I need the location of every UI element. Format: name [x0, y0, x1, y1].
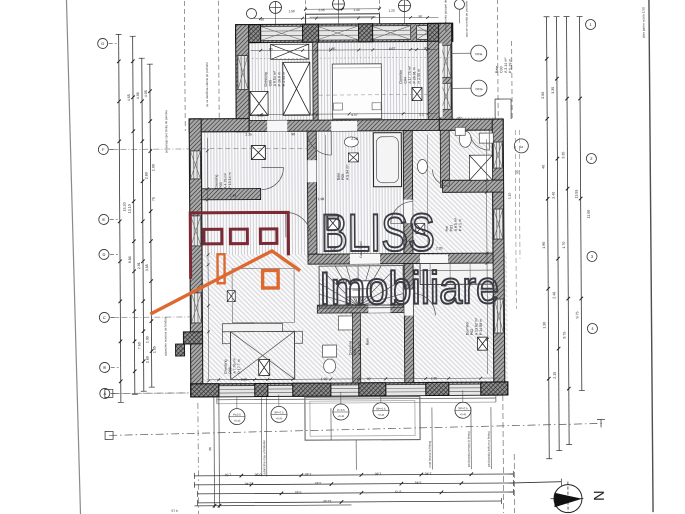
svg-text:1.70: 1.70: [562, 242, 566, 249]
svg-text:A 9.54 m²: A 9.54 m²: [273, 70, 277, 86]
svg-text:P 14.88 m: P 14.88 m: [479, 319, 483, 335]
svg-text:P 13.14 m: P 13.14 m: [228, 172, 232, 188]
svg-text:2.40: 2.40: [305, 472, 312, 476]
svg-text:C: C: [103, 315, 106, 320]
svg-text:3: 3: [591, 254, 594, 259]
svg-text:C04: C04: [403, 77, 407, 84]
svg-text:plan parter scara 1:50: plan parter scara 1:50: [641, 7, 645, 38]
svg-text:se retrage spre limita de parc: se retrage spre limita de parcela: [164, 110, 168, 153]
svg-text:BLISS: BLISS: [321, 203, 435, 263]
svg-text:pardoseala terasa la finisaj: pardoseala terasa la finisaj: [467, 431, 471, 467]
svg-text:1.05: 1.05: [153, 346, 157, 353]
svg-text:P05: P05: [341, 174, 345, 180]
svg-text:1.00: 1.00: [151, 164, 155, 171]
svg-text:2.44: 2.44: [230, 194, 237, 198]
svg-text:Dressing: Dressing: [349, 341, 353, 355]
svg-text:Baie: Baie: [365, 338, 369, 345]
svg-text:4.57: 4.57: [351, 113, 358, 117]
svg-text:3.35: 3.35: [561, 152, 565, 159]
svg-text:2.91: 2.91: [137, 262, 141, 269]
svg-text:45°: 45°: [457, 116, 463, 120]
svg-text:4.06: 4.06: [136, 92, 140, 99]
svg-text:9.75: 9.75: [575, 312, 579, 319]
svg-text:+0.45: +0.45: [378, 413, 385, 417]
svg-text:P03: P03: [219, 182, 223, 188]
svg-text:A 5.94 m²: A 5.94 m²: [345, 164, 349, 180]
svg-text:5.45: 5.45: [415, 481, 422, 485]
svg-text:13.93: 13.93: [575, 190, 579, 199]
svg-text:B: B: [103, 365, 106, 370]
svg-text:adancime max a fundatiei: adancime max a fundatiei: [262, 440, 266, 475]
svg-text:4.65: 4.65: [127, 94, 131, 101]
svg-text:cota terasa la finisaj: cota terasa la finisaj: [428, 441, 432, 468]
svg-text:3.05: 3.05: [257, 113, 264, 117]
svg-text:5.45: 5.45: [295, 490, 302, 494]
svg-text:90: 90: [269, 47, 273, 51]
svg-text:2: 2: [590, 156, 593, 161]
svg-text:P+0.5: P+0.5: [337, 408, 345, 412]
svg-text:3.85: 3.85: [145, 264, 149, 271]
svg-text:7.60: 7.60: [138, 342, 142, 349]
svg-text:P02: P02: [470, 329, 474, 335]
svg-text:Dormitor: Dormitor: [465, 321, 469, 336]
svg-text:9.86: 9.86: [128, 256, 132, 263]
svg-text:H 2.55 m: H 2.55 m: [417, 69, 421, 84]
svg-text:E: E: [102, 217, 105, 222]
svg-text:2.40: 2.40: [245, 482, 252, 486]
svg-text:P 4.1 m: P 4.1 m: [458, 219, 462, 231]
svg-text:90: 90: [291, 132, 295, 136]
svg-text:2.28: 2.28: [351, 137, 358, 141]
svg-text:9.75: 9.75: [562, 332, 566, 339]
svg-text:D: D: [103, 252, 106, 257]
svg-text:Dormitor: Dormitor: [399, 69, 403, 84]
svg-text:2.40: 2.40: [425, 471, 432, 475]
svg-text:1.50: 1.50: [288, 9, 294, 13]
svg-text:+0.45: +0.45: [338, 414, 345, 418]
svg-text:13.10: 13.10: [128, 204, 132, 213]
svg-text:4.05: 4.05: [144, 90, 148, 97]
svg-text:4.67: 4.67: [389, 47, 396, 51]
svg-text:1.10: 1.10: [508, 193, 512, 199]
svg-text:A 4.75 m²: A 4.75 m²: [223, 173, 227, 189]
svg-text:A 3.3 m²: A 3.3 m²: [358, 341, 362, 355]
svg-text:P±0.0: P±0.0: [233, 413, 241, 417]
svg-text:C05: C05: [268, 80, 272, 87]
svg-text:1.50: 1.50: [225, 473, 232, 477]
svg-text:1.85: 1.85: [329, 47, 336, 51]
svg-text:usa se va muta pe peretele opu: usa se va muta pe peretele opus: [464, 0, 468, 37]
svg-text:90: 90: [367, 377, 371, 381]
svg-text:2.80: 2.80: [144, 172, 148, 179]
svg-text:90: 90: [515, 170, 519, 174]
svg-text:P 16.0 m: P 16.0 m: [277, 72, 281, 86]
svg-text:15.20: 15.20: [123, 202, 127, 211]
svg-text:2.15: 2.15: [553, 372, 557, 379]
svg-text:C04a: C04a: [475, 52, 483, 56]
svg-text:9.75: 9.75: [395, 490, 402, 494]
svg-text:A 13.82 m²: A 13.82 m²: [474, 317, 478, 335]
svg-text:90: 90: [424, 46, 428, 50]
svg-text:2.40: 2.40: [552, 192, 556, 199]
svg-text:1.98: 1.98: [318, 197, 325, 201]
svg-text:G: G: [101, 41, 104, 46]
svg-text:90: 90: [419, 15, 423, 19]
svg-text:1a: 1a: [520, 145, 524, 149]
svg-text:Dressing: Dressing: [214, 175, 218, 189]
svg-text:75: 75: [152, 197, 156, 201]
svg-text:1.90: 1.90: [542, 242, 546, 249]
svg-text:2.35: 2.35: [436, 246, 443, 250]
svg-text:A 9.5 m²: A 9.5 m²: [454, 217, 458, 231]
svg-text:SP+0.5: SP+0.5: [274, 410, 284, 414]
svg-text:se va desfiinta zidaria pe por: se va desfiinta zidaria pe portiune: [205, 62, 209, 107]
svg-text:2.85: 2.85: [431, 376, 438, 380]
svg-text:3.35: 3.35: [551, 87, 555, 94]
svg-text:Hol: Hol: [445, 226, 449, 232]
svg-text:1.30: 1.30: [542, 322, 546, 329]
svg-text:3.45: 3.45: [315, 481, 322, 485]
svg-text:F: F: [102, 147, 105, 152]
svg-text:SP+0.5: SP+0.5: [458, 406, 468, 410]
svg-text:adancime maxima de fundare: adancime maxima de fundare: [163, 316, 167, 356]
svg-text:11.00: 11.00: [587, 210, 591, 219]
svg-text:1.90: 1.90: [145, 336, 149, 343]
svg-text:P06: P06: [353, 349, 357, 355]
svg-text:A 7.76 m²: A 7.76 m²: [233, 357, 237, 373]
svg-text:1.40: 1.40: [353, 8, 359, 12]
svg-text:pardoseala balcon a finisaj: pardoseala balcon a finisaj: [487, 431, 491, 467]
svg-text:4: 4: [591, 326, 594, 331]
svg-text:40: 40: [541, 165, 545, 169]
svg-text:SP+0.5: SP+0.5: [376, 407, 386, 411]
svg-text:P08: P08: [228, 367, 232, 373]
svg-text:C03: C03: [499, 66, 503, 73]
svg-text:Imobiliare: Imobiliare: [319, 261, 499, 314]
svg-text:A 17.75 m²: A 17.75 m²: [408, 65, 412, 83]
svg-text:1.80: 1.80: [375, 472, 382, 476]
svg-text:Baie: Baie: [495, 66, 499, 73]
svg-text:se va monta parapet de protect: se va monta parapet de protectie: [443, 0, 447, 31]
svg-text:2.80: 2.80: [146, 356, 150, 363]
svg-text:2.60: 2.60: [541, 92, 545, 99]
svg-text:2.1: 2.1: [419, 112, 424, 116]
svg-text:57 h: 57 h: [172, 509, 178, 513]
svg-text:3.55: 3.55: [241, 378, 248, 382]
svg-text:Dressing: Dressing: [264, 72, 268, 86]
svg-text:2.48: 2.48: [552, 292, 556, 299]
svg-text:Baie: Baie: [336, 173, 340, 180]
svg-text:+0.45: +0.45: [460, 412, 467, 416]
svg-text:H 2.55 m: H 2.55 m: [282, 72, 286, 87]
svg-text:P01: P01: [449, 225, 453, 231]
svg-text:2.35: 2.35: [245, 133, 252, 137]
svg-text:0.90: 0.90: [255, 472, 262, 476]
svg-text:+0.45: +0.45: [276, 416, 283, 420]
svg-text:C03a: C03a: [475, 87, 483, 91]
svg-text:1.20: 1.20: [321, 377, 328, 381]
svg-text:A 3.14 m²: A 3.14 m²: [504, 57, 508, 73]
svg-text:P 26.91 m: P 26.91 m: [412, 67, 416, 83]
svg-text:P 17.7 m: P 17.7 m: [237, 359, 241, 373]
svg-text:96: 96: [208, 447, 212, 451]
svg-text:1: 1: [589, 22, 592, 27]
svg-text:11.45: 11.45: [323, 499, 331, 503]
svg-text:1.20: 1.20: [388, 9, 394, 13]
svg-text:N: N: [590, 490, 606, 501]
svg-text:2.05: 2.05: [318, 8, 324, 12]
svg-text:+0.45: +0.45: [234, 419, 241, 423]
svg-text:Dressing: Dressing: [224, 360, 228, 374]
